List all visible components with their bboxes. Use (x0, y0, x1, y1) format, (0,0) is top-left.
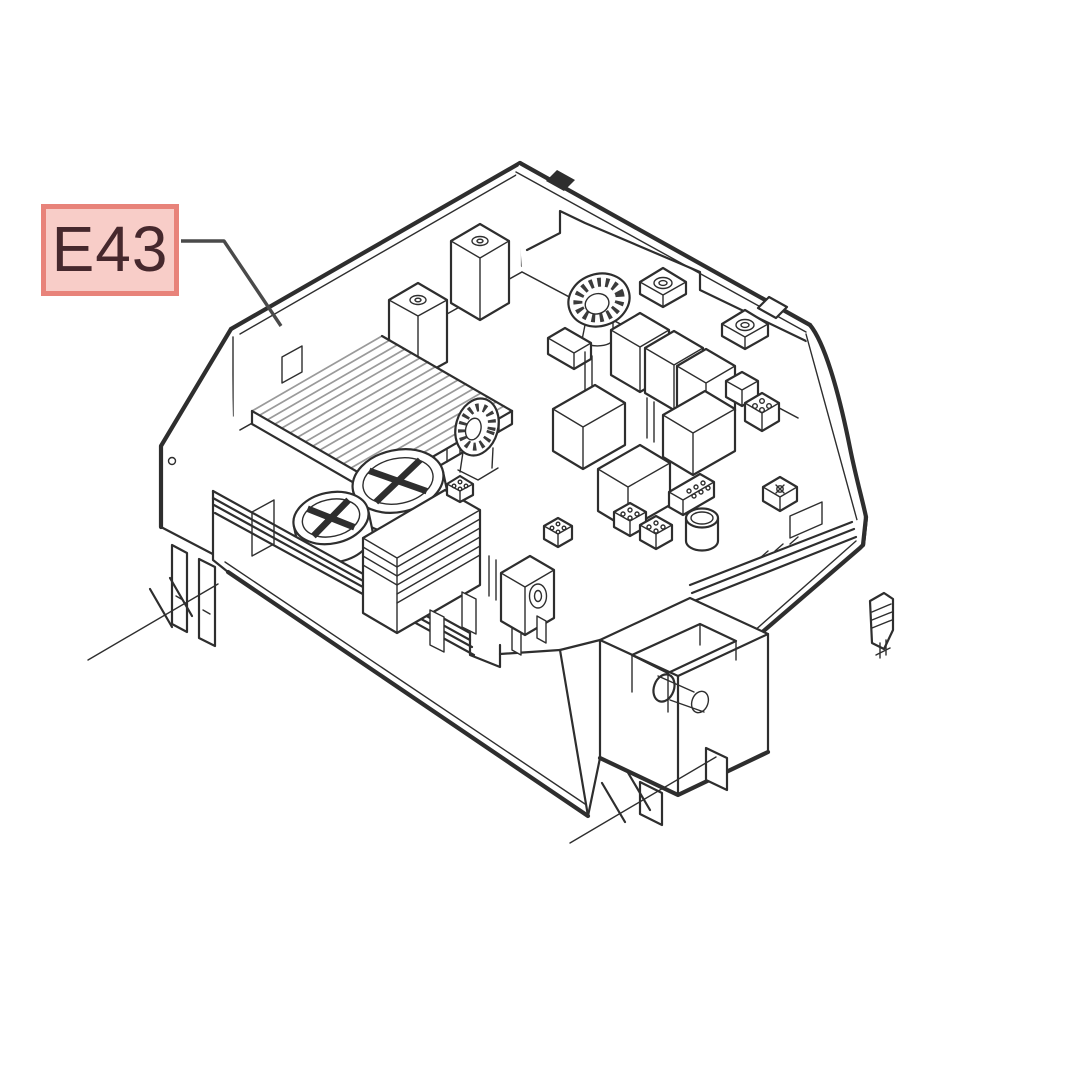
capacitor-cylinder-small (686, 509, 718, 551)
parts-diagram-page: E43 (0, 0, 1080, 1080)
callout-box: E43 (41, 204, 179, 296)
callout-label: E43 (52, 217, 169, 283)
standoff-post-2 (451, 224, 509, 320)
technical-drawing (0, 0, 1080, 1080)
pin-header-cube-4 (544, 518, 572, 547)
clip-part (870, 593, 893, 658)
